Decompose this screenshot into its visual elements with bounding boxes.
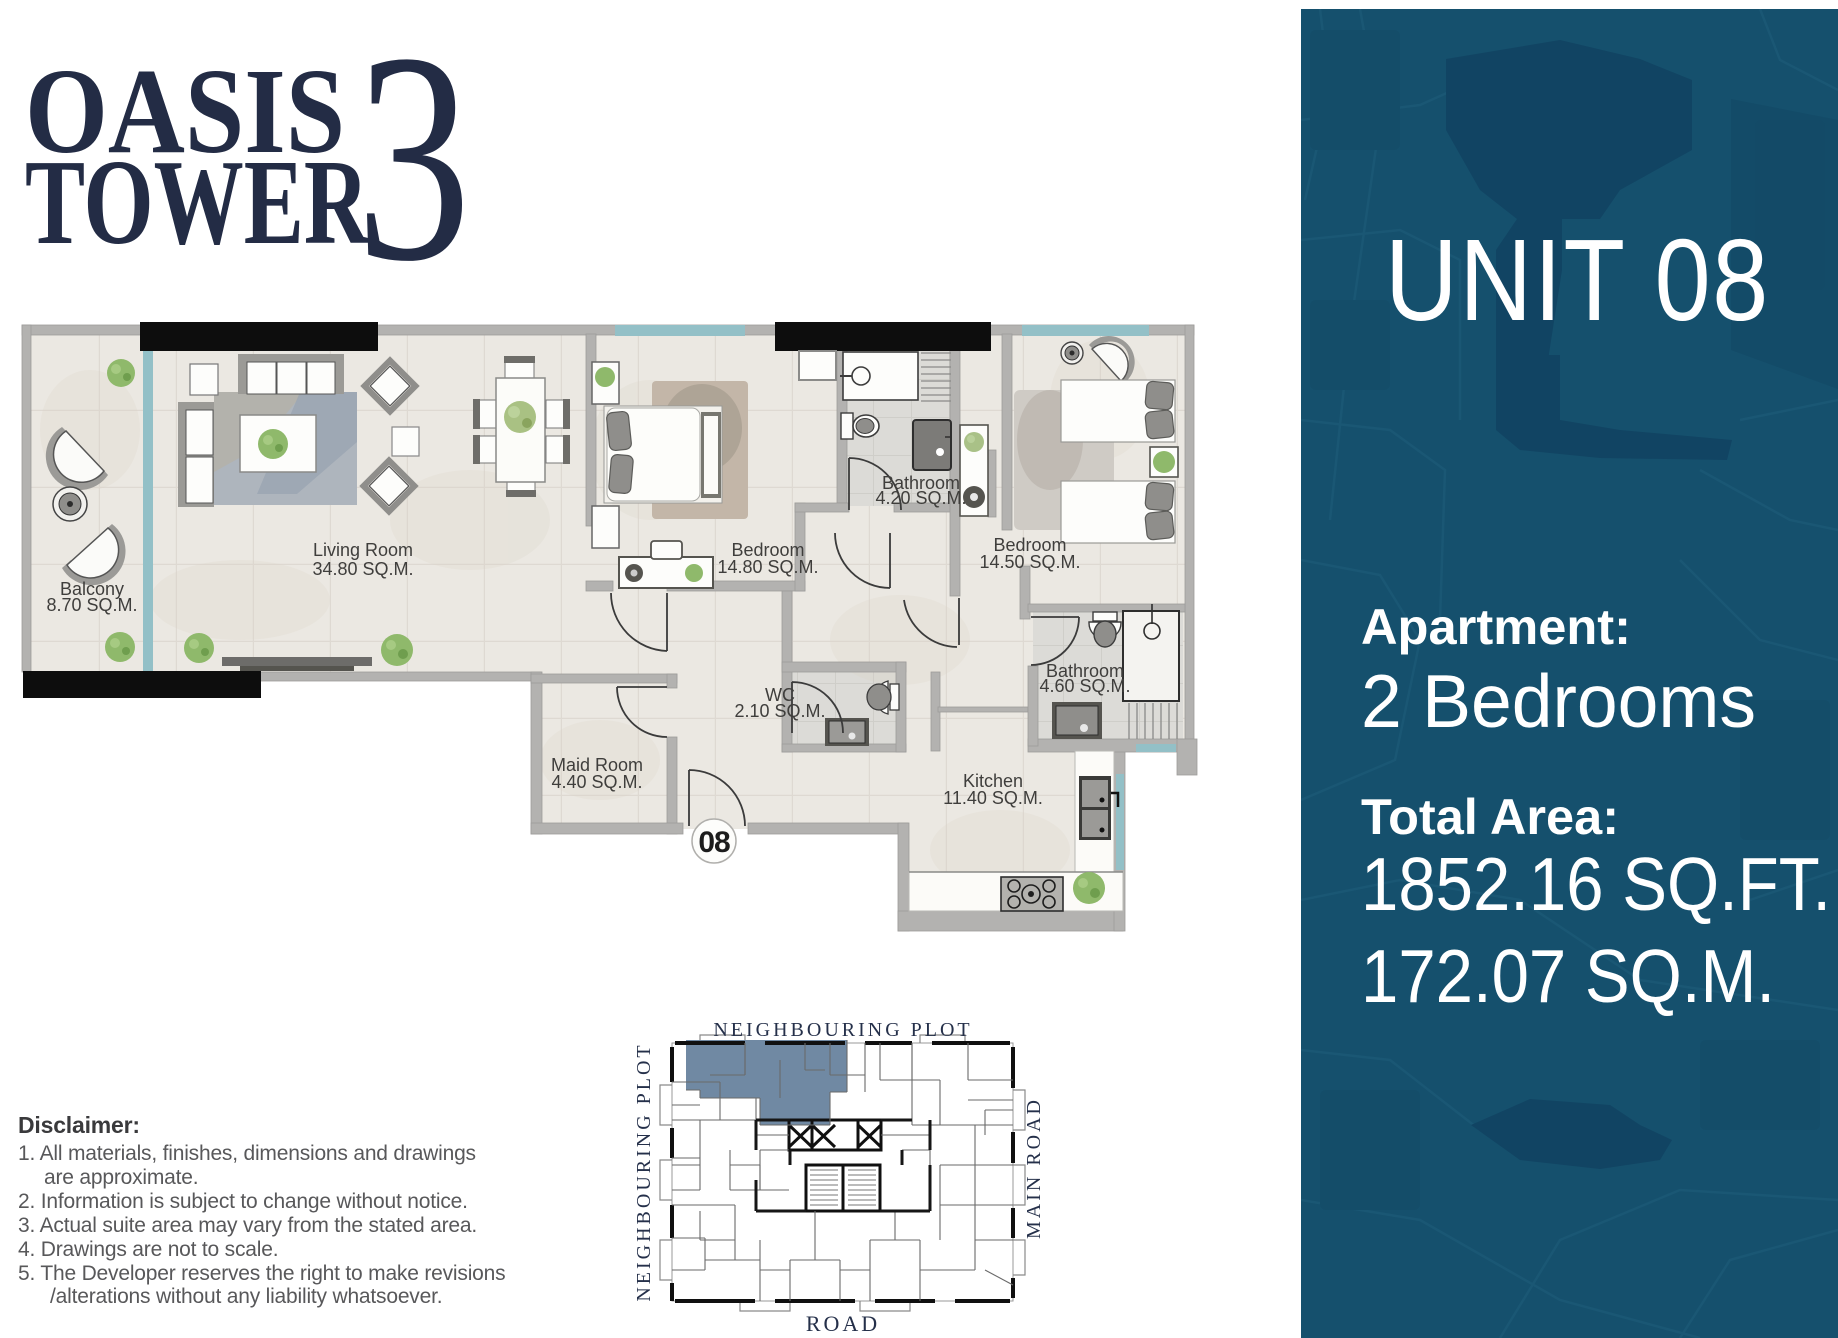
- svg-text:5. The Developer reserves the: 5. The Developer reserves the right to m…: [18, 1262, 505, 1285]
- svg-text:NEIGHBOURING PLOT: NEIGHBOURING PLOT: [633, 1042, 655, 1301]
- svg-text:MAIN ROAD: MAIN ROAD: [1023, 1097, 1045, 1239]
- svg-text:Disclaimer:: Disclaimer:: [18, 1112, 140, 1138]
- svg-text:1. All materials, finishes, di: 1. All materials, finishes, dimensions a…: [18, 1142, 476, 1165]
- svg-text:3. Actual suite area may vary: 3. Actual suite area may vary from the s…: [18, 1214, 477, 1237]
- svg-text:TOWER: TOWER: [25, 135, 370, 270]
- svg-text:14.80 SQ.M.: 14.80 SQ.M.: [717, 557, 818, 577]
- svg-text:Apartment:: Apartment:: [1361, 599, 1631, 655]
- svg-text:1852.16 SQ.FT.: 1852.16 SQ.FT.: [1361, 842, 1831, 926]
- svg-text:2. Information is subject to c: 2. Information is subject to change with…: [18, 1190, 468, 1213]
- svg-text:4.40 SQ.M.: 4.40 SQ.M.: [551, 772, 642, 792]
- svg-text:2.10 SQ.M.: 2.10 SQ.M.: [734, 701, 825, 721]
- svg-text:11.40 SQ.M.: 11.40 SQ.M.: [943, 788, 1043, 808]
- svg-text:2 Bedrooms: 2 Bedrooms: [1361, 659, 1756, 743]
- svg-text:4. Drawings are not to scale.: 4. Drawings are not to scale.: [18, 1238, 278, 1261]
- svg-text:172.07 SQ.M.: 172.07 SQ.M.: [1361, 934, 1775, 1018]
- svg-text:NEIGHBOURING PLOT: NEIGHBOURING PLOT: [713, 1019, 972, 1041]
- svg-text:3: 3: [356, 0, 471, 323]
- svg-text:4.20 SQ.M.: 4.20 SQ.M.: [875, 488, 966, 508]
- svg-text:4.60 SQ.M.: 4.60 SQ.M.: [1039, 676, 1130, 696]
- svg-text:/alterations without any liabi: /alterations without any liability whats…: [50, 1285, 442, 1308]
- svg-text:UNIT 08: UNIT 08: [1385, 215, 1770, 345]
- svg-text:08: 08: [698, 826, 730, 859]
- svg-text:are approximate.: are approximate.: [44, 1166, 198, 1189]
- svg-text:14.50 SQ.M.: 14.50 SQ.M.: [979, 552, 1080, 572]
- svg-text:ROAD: ROAD: [806, 1311, 880, 1336]
- svg-text:8.70 SQ.M.: 8.70 SQ.M.: [46, 595, 137, 615]
- svg-text:Living Room: Living Room: [313, 540, 413, 560]
- svg-text:Total Area:: Total Area:: [1361, 789, 1619, 845]
- svg-text:34.80 SQ.M.: 34.80 SQ.M.: [312, 559, 413, 579]
